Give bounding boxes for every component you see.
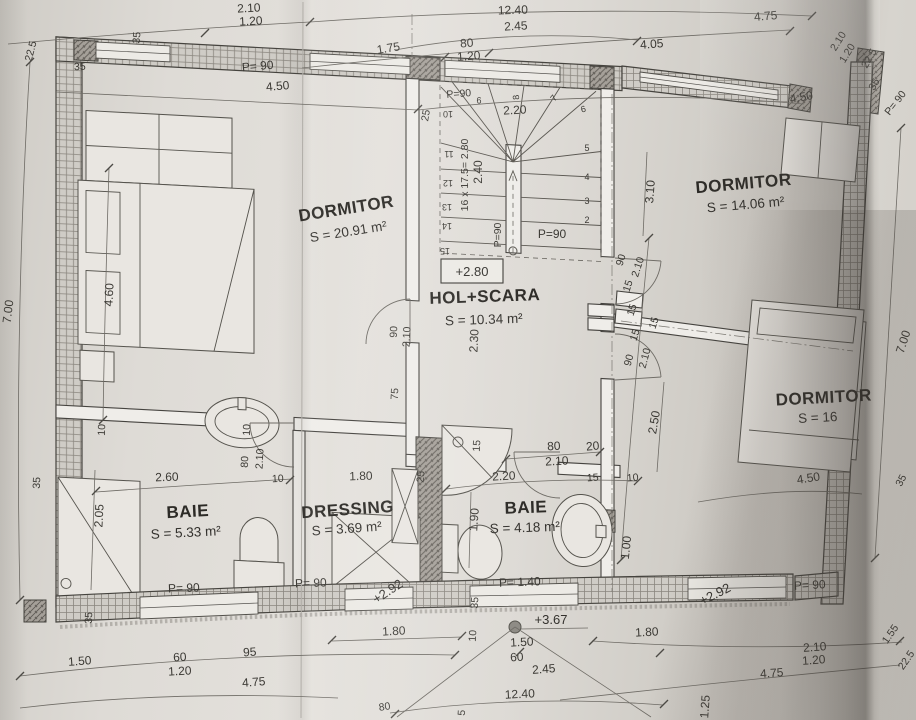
dimension-label: 22.5 [23, 40, 40, 63]
dimension-label: 1.50 [510, 634, 534, 649]
dimension-label: 75 [389, 388, 402, 400]
dimension-label: 2.30 [466, 328, 481, 352]
room-area-dormitor-2: S = 14.06 m² [706, 194, 785, 216]
dimension-label: 22.5 [896, 648, 916, 672]
dimension-tick [201, 29, 209, 37]
dimension-label: 2 [584, 215, 589, 225]
room-area-baie-1: S = 5.33 m² [150, 523, 221, 542]
room-area-baie-2: S = 4.18 m² [490, 519, 561, 536]
dimension-label: 7.00 [0, 299, 16, 324]
dimension-tick [896, 637, 904, 645]
dimension-label: 1.80 [349, 469, 373, 484]
dimension-label: 4.50 [796, 469, 822, 487]
dimension-label: 12 [443, 178, 453, 188]
wall-pier [406, 56, 440, 80]
wall-pier [24, 600, 46, 622]
dimension-label: 15 [587, 472, 600, 485]
dimension-label: 2.40 [471, 160, 485, 184]
dimension-label: 3.10 [642, 179, 658, 204]
dimension-label: 35 [74, 61, 86, 74]
dimension-label: 2.10 [545, 453, 569, 468]
dimension-label: 11 [444, 149, 453, 159]
level-mark-hall: +2.80 [456, 264, 489, 279]
dimension-label: 4.75 [753, 8, 778, 24]
dimension-label: 1.00 [618, 535, 634, 560]
dimension-label: 16 x 17.5= 2.80 [459, 138, 471, 211]
dimension-label: 20 [585, 438, 600, 453]
dimension-label: 1.80 [382, 623, 406, 638]
dimension-label: 2.45 [532, 661, 557, 677]
dimension-label: 8 [511, 94, 521, 100]
dimension-label: 60 [173, 650, 187, 665]
faucet [238, 397, 246, 409]
closet-niche [588, 304, 614, 317]
dimension-label: P=90 [492, 222, 504, 247]
dimension-label: 4 [584, 172, 589, 182]
dimension-label: 1.25 [697, 694, 713, 719]
dimension-label: 25 [415, 470, 428, 483]
dimension-label: 10 [272, 473, 284, 486]
dimension-label: P= 90 [241, 58, 274, 75]
dimension-label: P=90 [538, 227, 567, 241]
wall-pier [74, 40, 98, 61]
dimension-label: 1.20 [168, 663, 192, 678]
dimension-label: 12.40 [498, 2, 529, 17]
dimension-label: 2.10 [400, 326, 413, 347]
room-name-baie-1: BAIE [166, 501, 210, 522]
dimension-label: 1.20 [457, 48, 482, 64]
dimension-label: 7 [548, 93, 559, 103]
dimension-label: 10 [96, 424, 109, 436]
dimension-label: P= 90 [882, 88, 909, 117]
dimension-label: 60 [510, 650, 524, 665]
nightstand [80, 350, 114, 382]
wall-pier [590, 66, 614, 89]
dimension-label: 35 [893, 472, 909, 488]
furniture [58, 109, 612, 630]
dimension-label: 15 [471, 439, 484, 452]
floor-plan-photo: 2.101.2012.402.451.75801.204.054.7522.53… [0, 0, 916, 720]
dimension-label: P= 90 [794, 577, 827, 593]
dimension-label: 15 [621, 279, 636, 294]
dimension-label: P= 90 [295, 575, 327, 590]
dimension-label: 3 [584, 196, 589, 206]
dimension-label: 35 [469, 596, 482, 609]
floor-plan-drawing: 2.101.2012.402.451.75801.204.054.7522.53… [0, 0, 916, 720]
bed [78, 180, 254, 353]
dimension-tick [458, 632, 466, 640]
dimension-label: 35 [83, 612, 96, 624]
dimension-label: 2.10 [637, 347, 654, 370]
dimension-label: 90 [614, 253, 629, 268]
plan-left-page [56, 37, 622, 637]
dimension-label: 1.75 [376, 39, 402, 57]
dimension-label: 1.90 [466, 507, 482, 532]
dimension-label: 4.05 [640, 36, 665, 52]
dimension-label: 2.10 [253, 448, 266, 469]
wardrobe [781, 118, 860, 182]
dimension-label: 15 [440, 246, 450, 256]
toilet-tank [442, 524, 458, 573]
level-mark-landing: +3.67 [535, 612, 568, 627]
dimension-label: 13 [442, 202, 452, 212]
dimension-label: 90 [622, 353, 637, 368]
dimension-label: P=90 [446, 87, 472, 101]
dimension-label: 10 [241, 424, 254, 436]
dimension-tick [328, 636, 336, 644]
toilet [240, 517, 278, 563]
dimension-label: 1.20 [239, 13, 263, 28]
dimension-label: 80 [378, 700, 391, 714]
dimension-label: 1.50 [68, 653, 93, 669]
dimension-label: 10 [467, 629, 480, 642]
dimension-label: 35 [31, 477, 44, 489]
dimension-label: 2.20 [503, 102, 527, 117]
dimension-label: 2.60 [155, 470, 179, 485]
dimension-label: 14 [442, 221, 452, 231]
dimension-tick [786, 27, 794, 35]
dimension-label: 1.20 [802, 652, 827, 668]
dimension-label: P= 90 [168, 580, 200, 595]
room-name-baie-2: BAIE [504, 497, 547, 517]
dimension-label: 95 [243, 645, 258, 660]
room-area-dormitor-3: S = 16 [798, 409, 838, 426]
dimension-label: 9 [476, 95, 481, 105]
dimension-tick [660, 700, 668, 708]
dimension-label: 12.40 [504, 686, 535, 702]
dimension-label: 5 [456, 709, 468, 716]
dimension-label: 90 [388, 326, 401, 338]
faucet [596, 525, 606, 538]
dimension-label: 80 [239, 456, 252, 468]
dimension-label: 4.75 [242, 674, 267, 690]
dimension-label: 5 [584, 143, 589, 153]
dimension-label: 7.00 [893, 328, 914, 355]
room-area-hol-scara: S = 10.34 m² [445, 311, 524, 329]
dimension-label: 2.20 [492, 468, 516, 483]
dimension-label: 6 [580, 104, 587, 115]
dimension-label: 4.60 [101, 282, 116, 306]
dimension-label: 4.50 [265, 78, 290, 94]
dimension-label: 80 [547, 439, 561, 454]
dimension-label: 10 [443, 109, 453, 119]
dimension-label: P= 1.40 [499, 574, 541, 589]
closet-niche [588, 318, 614, 331]
dimension-label: 1.80 [635, 624, 659, 639]
plan-photo-layer [8, 2, 902, 718]
dimension-label: 2.05 [91, 503, 106, 527]
room-name-hol-scara: HOL+SCARA [429, 285, 540, 308]
dimension-label: 25 [419, 109, 433, 123]
dimension-tick [656, 649, 664, 657]
dimension-label: 35 [131, 31, 144, 44]
dimension-label: 2.45 [504, 18, 528, 33]
room-name-dormitor-2: DORMITOR [695, 170, 793, 197]
dimension-label: 4.75 [760, 665, 785, 681]
